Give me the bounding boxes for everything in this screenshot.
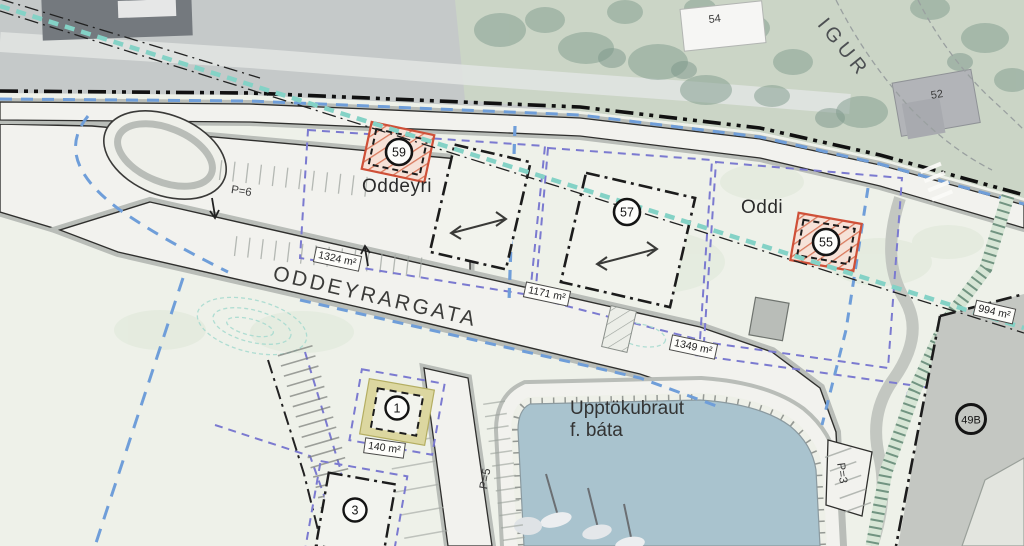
- slipway-label-line2: f. báta: [570, 420, 684, 442]
- plan-linework: 59 57 55 1 3 49B: [0, 0, 1024, 546]
- circle-55: 55: [813, 229, 839, 255]
- building-number-52: 52: [930, 88, 944, 102]
- slipway-label-line1: Upptökubraut: [570, 398, 684, 420]
- district-label-oddi: Oddi: [741, 197, 783, 219]
- aerial-building-54: [680, 1, 766, 51]
- circle-49b-label: 49B: [961, 415, 981, 427]
- circle-57: 57: [614, 199, 640, 225]
- circle-49b: 49B: [957, 405, 986, 434]
- circle-3-label: 3: [352, 504, 359, 518]
- shed-east: [749, 297, 789, 340]
- circle-57-label: 57: [620, 206, 634, 220]
- circle-59: 59: [386, 139, 412, 165]
- parking-p3: [826, 440, 872, 516]
- circle-55-label: 55: [819, 236, 833, 250]
- building-number-54: 54: [708, 13, 721, 26]
- circle-59-label: 59: [392, 146, 406, 160]
- district-label-oddeyri: Oddeyri: [362, 176, 432, 198]
- slipway-label: Upptökubraut f. báta: [570, 398, 684, 442]
- site-plan-map: 59 57 55 1 3 49B Oddeyri Oddi ODDEYRARGA…: [0, 0, 1024, 546]
- circle-1: 1: [386, 397, 409, 420]
- aerial-building-dark: [41, 0, 192, 41]
- circle-3: 3: [344, 499, 367, 522]
- circle-1-label: 1: [394, 402, 401, 416]
